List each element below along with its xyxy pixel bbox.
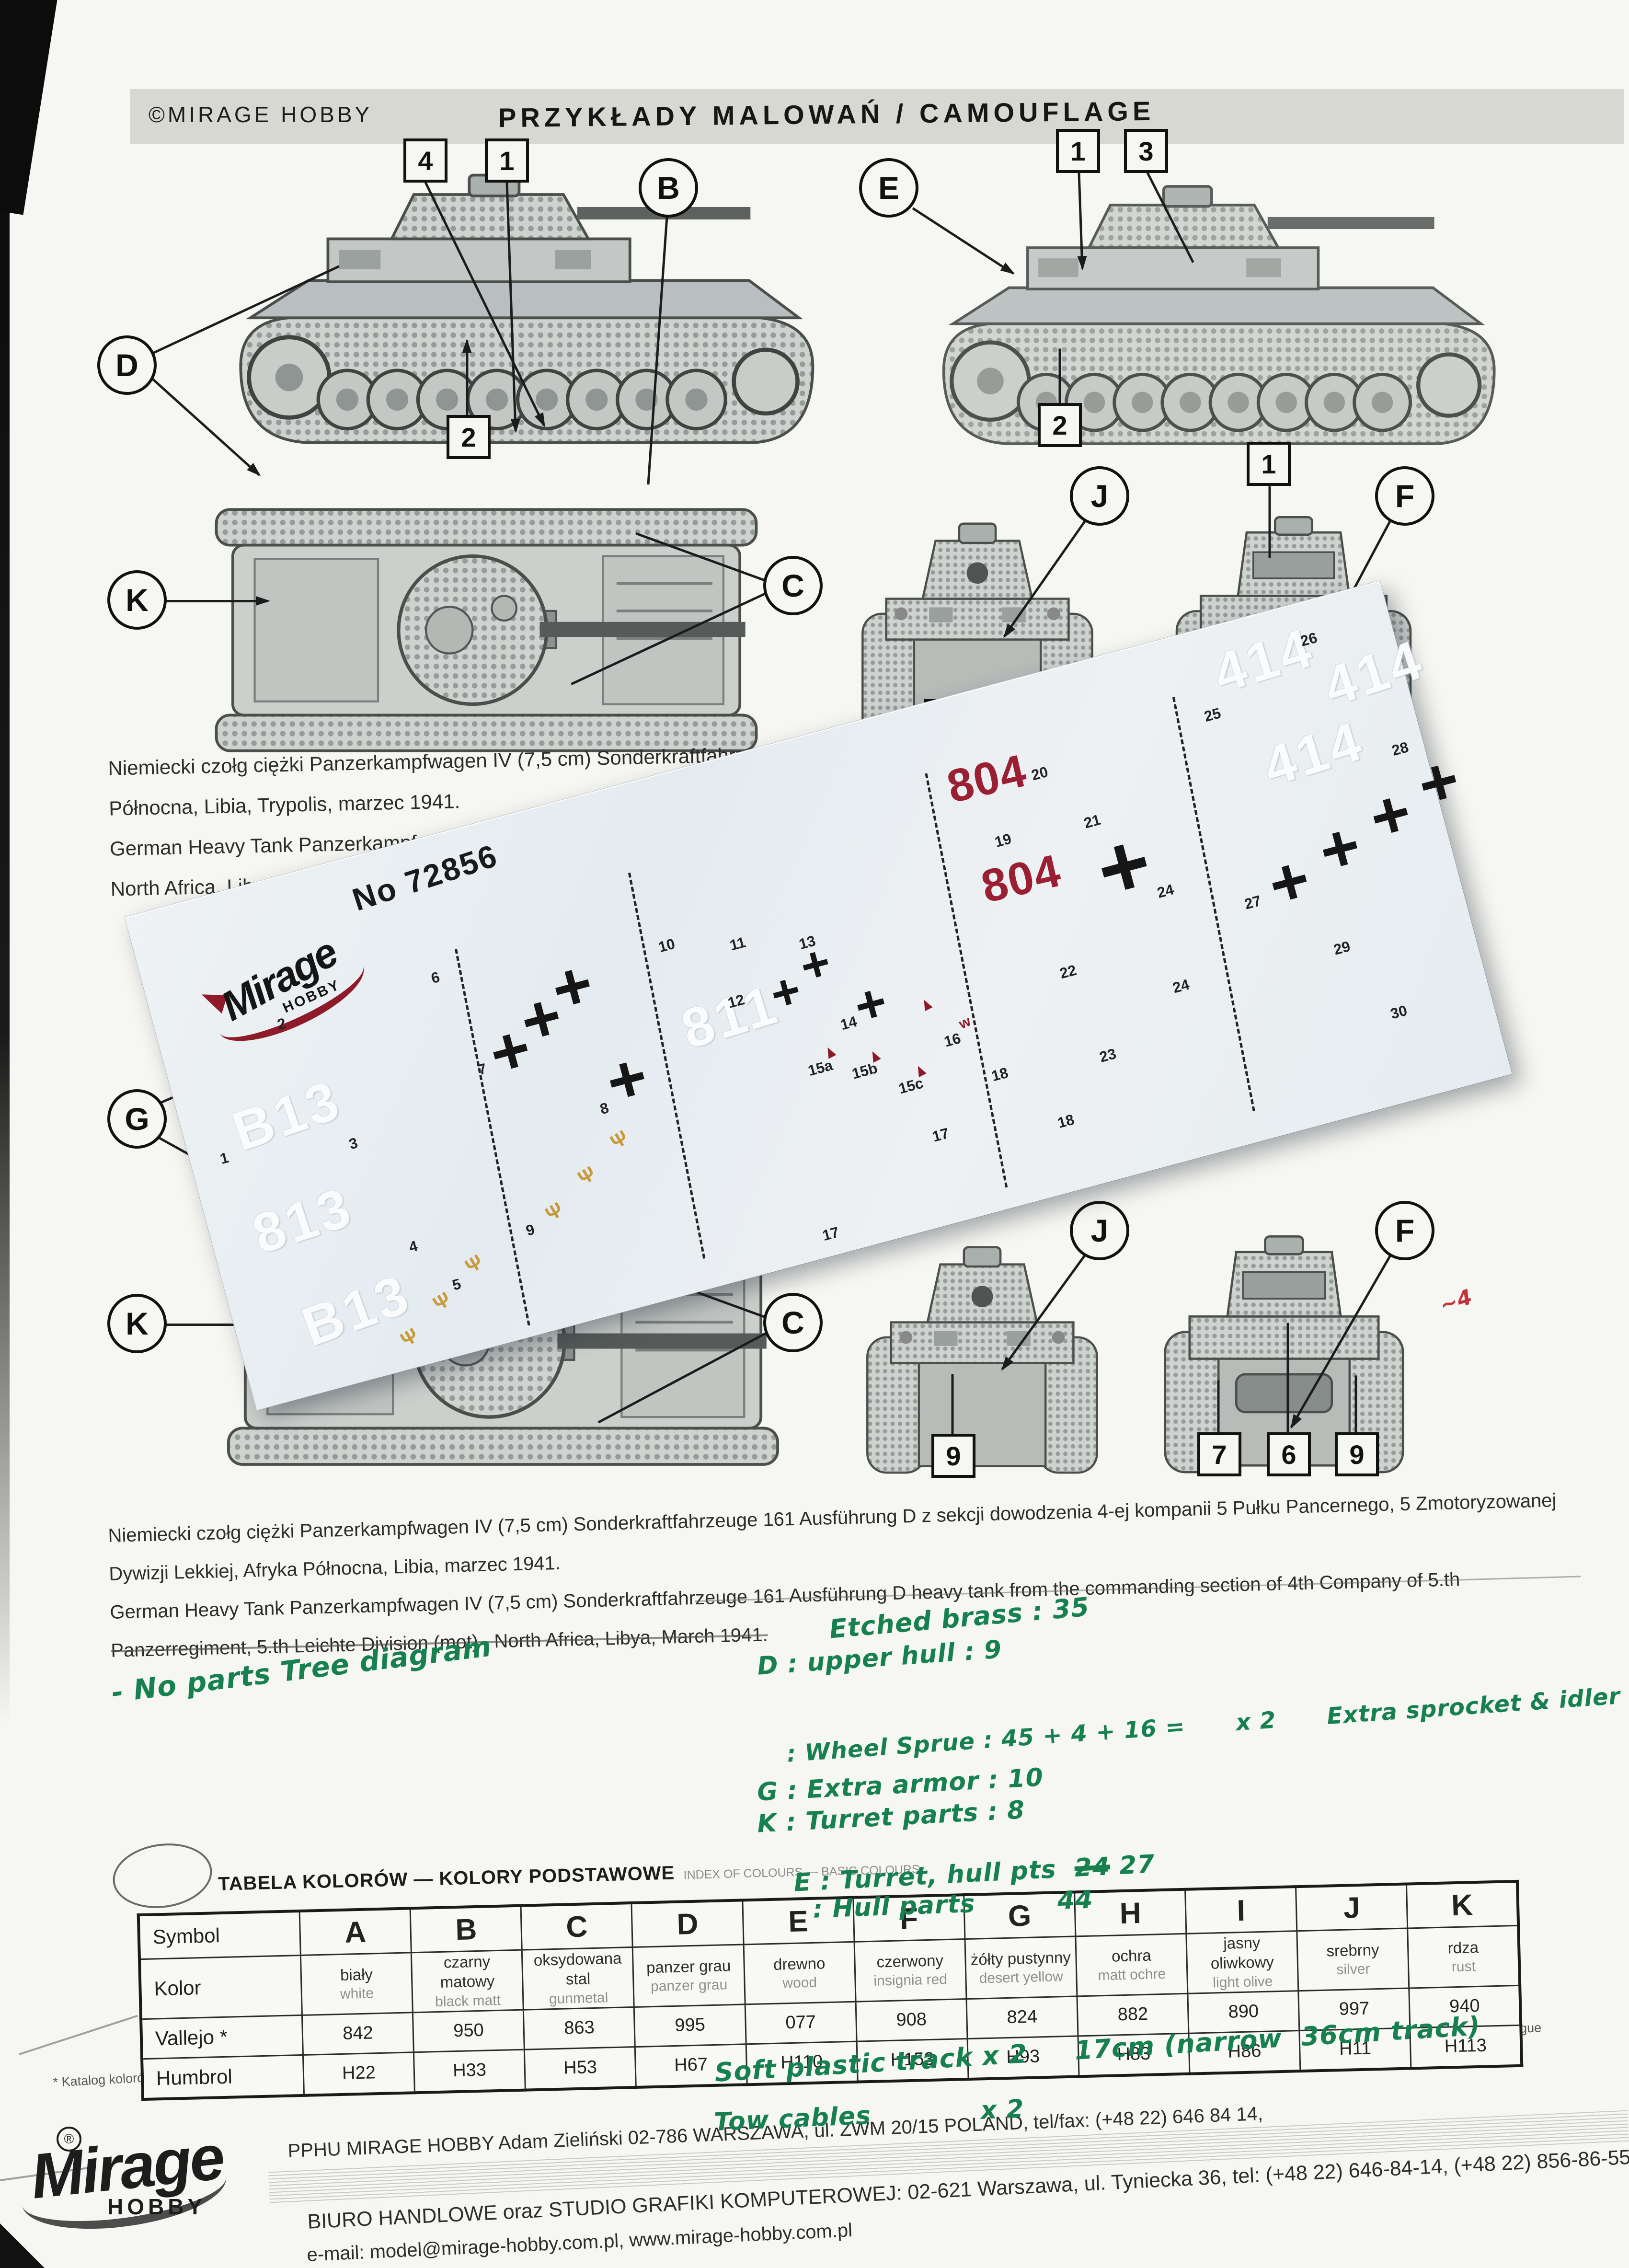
callout-box-7: 7 [1197, 1432, 1241, 1476]
table-cell: białywhite [300, 1953, 413, 2015]
decal-ghost-numeral: 414 [1256, 709, 1371, 799]
color-name-pl: srebrny [1301, 1939, 1405, 1961]
scanned-instruction-page: ©MIRAGE HOBBY PRZYKŁADY MALOWAŃ / CAMOUF… [0, 0, 1629, 2268]
callout-box-9: 9 [931, 1434, 975, 1478]
table-cell: K [1407, 1881, 1518, 1928]
tank-front-view-lower [858, 1217, 1107, 1485]
decal-item-number: 15c [897, 1074, 925, 1097]
leader-line [952, 1374, 954, 1439]
callout-circle-e: E [859, 158, 918, 218]
decal-item-number: 10 [656, 935, 677, 956]
row-label: Humbrol [142, 2055, 304, 2099]
color-name-en: rust [1412, 1956, 1515, 1977]
table-cell: oksydowana stalgunmetal [522, 1947, 634, 2010]
decal-item-number: 24 [1155, 881, 1176, 902]
leader-line [1059, 349, 1061, 406]
table-cell: A [299, 1908, 411, 1955]
color-name-pl: żółty pustynny [969, 1947, 1073, 1969]
color-name-pl: czarny matowy [415, 1951, 519, 1993]
tank-side-view-left [206, 156, 843, 474]
decal-balkenkreuz-icon [552, 967, 593, 1008]
scan-corner-artifact [0, 0, 62, 215]
decal-red-numeral: 804 [942, 744, 1032, 814]
table-cell: 863 [524, 2007, 635, 2049]
leader-line [1269, 486, 1271, 558]
table-cell: srebrnysilver [1297, 1928, 1409, 1991]
callout-circle-c: C [763, 1293, 823, 1352]
table-cell: 824 [966, 1996, 1078, 2038]
decal-item-number: 20 [1030, 763, 1050, 784]
footer-logo: ® Mirage HOBBY [16, 2127, 294, 2242]
callout-box-4: 4 [403, 138, 447, 183]
decal-item-number: 18 [990, 1064, 1010, 1085]
callout-circle-c: C [763, 556, 823, 615]
pencil-line [19, 2015, 138, 2055]
color-name-en: desert yellow [969, 1967, 1073, 1988]
table-cell: H22 [303, 2052, 414, 2095]
decal-separator-line [455, 949, 530, 1325]
decal-item-number: 6 [429, 968, 442, 987]
color-name-pl: panzer grau [637, 1955, 741, 1978]
color-name-pl: ochra [1079, 1945, 1183, 1967]
color-name-en: black matt [416, 1990, 520, 2011]
callout-box-9: 9 [1335, 1432, 1379, 1476]
table-cell: H33 [414, 2049, 526, 2093]
table-cell: jasny oliwkowylight olive [1186, 1931, 1298, 1993]
decal-balkenkreuz-icon [490, 1031, 531, 1072]
brand-subname: HOBBY [107, 2194, 206, 2220]
table-cell: ochramatt ochre [1076, 1934, 1188, 1996]
decal-balkenkreuz-icon [1418, 762, 1459, 804]
decal-item-number: 17 [821, 1223, 841, 1244]
callout-circle-d: D [97, 335, 157, 395]
decal-item-number: 28 [1390, 738, 1411, 760]
color-name-en: white [305, 1983, 409, 2004]
table-cell: 908 [856, 1999, 967, 2041]
decal-item-number: 9 [524, 1221, 537, 1240]
decal-item-number: 7 [476, 1060, 489, 1079]
callout-circle-k: K [107, 1294, 167, 1353]
decal-item-number: 11 [728, 933, 747, 954]
table-cell: rdzarust [1408, 1925, 1520, 1988]
decal-insignia-icon: Ψ [607, 1126, 632, 1154]
decal-brand-logo: Mirage HOBBY [199, 916, 433, 1051]
decal-item-number: 23 [1098, 1045, 1118, 1066]
decal-balkenkreuz-icon [521, 999, 562, 1040]
note-wheel-sprue: : Wheel Sprue : 45 + 4 + 16 = x 2 Extra … [786, 1682, 1621, 1768]
table-cell: B [410, 1906, 522, 1953]
decal-insignia-icon: Ψ [461, 1250, 487, 1278]
color-name-en: gunmetal [527, 1988, 631, 2009]
decal-item-number: 1 [218, 1149, 230, 1168]
decal-balkenkreuz-icon [855, 988, 887, 1021]
row-label: Symbol [138, 1911, 301, 1959]
callout-circle-g: G [107, 1089, 167, 1149]
decal-item-number: 3 [347, 1134, 360, 1153]
decal-item-number: 25 [1202, 704, 1223, 725]
leader-line [466, 341, 469, 417]
leader-line [1355, 1376, 1357, 1438]
table-cell: D [631, 1900, 743, 1947]
table-cell: 077 [745, 2002, 857, 2044]
decal-item-number: 22 [1058, 962, 1078, 983]
decal-balkenkreuz-icon [1097, 840, 1151, 894]
table-cell: C [521, 1903, 632, 1950]
note-value: 44 [1057, 1885, 1093, 1915]
decal-item-number: 17 [930, 1125, 951, 1146]
callout-box-1: 1 [485, 138, 529, 183]
callout-box-1: 1 [1247, 442, 1291, 486]
callout-box-1: 1 [1056, 129, 1100, 173]
scan-edge-artifact [0, 0, 10, 1725]
decal-red-mark-icon: w [957, 1013, 974, 1033]
decal-balkenkreuz-icon [1269, 862, 1310, 903]
callout-circle-j: J [1070, 466, 1129, 526]
color-name-en: light olive [1191, 1971, 1295, 1992]
decal-red-arrow-icon [824, 1046, 836, 1059]
decal-red-arrow-icon [920, 998, 933, 1011]
color-name-en: insignia red [859, 1969, 963, 1991]
leader-line [1217, 1381, 1220, 1438]
callout-circle-f: F [1375, 466, 1434, 526]
decal-item-number: 8 [598, 1099, 611, 1118]
color-name-pl: biały [304, 1963, 408, 1986]
color-name-en: panzer grau [637, 1975, 741, 1996]
decal-item-number: 4 [407, 1237, 419, 1256]
decal-item-number: 30 [1388, 1002, 1409, 1023]
color-name-en: wood [748, 1972, 852, 1993]
row-label: Vallejo * [141, 2015, 303, 2059]
decal-separator-line [1172, 697, 1255, 1112]
table-ellipse-icon [109, 1837, 216, 1914]
decal-ghost-numeral: B13 [225, 1068, 349, 1163]
callout-circle-j: J [1070, 1201, 1129, 1260]
table-cell: 842 [302, 2012, 413, 2055]
decal-item-number: 27 [1243, 892, 1263, 913]
decal-item-number: 21 [1082, 811, 1102, 832]
callout-box-3: 3 [1124, 129, 1168, 173]
decal-item-number: 16 [942, 1030, 963, 1051]
callout-box-2: 2 [1038, 403, 1082, 447]
decal-item-number: 19 [993, 830, 1013, 851]
decal-insignia-icon: Ψ [541, 1198, 567, 1226]
decal-item-number: 15a [806, 1057, 835, 1080]
decal-item-number: 15b [850, 1059, 879, 1083]
decal-item-number: 24 [1171, 976, 1192, 997]
color-name-pl: oksydowana stal [526, 1948, 630, 1990]
color-name-en: matt ochre [1080, 1964, 1184, 1985]
color-name-pl: drewno [747, 1953, 851, 1975]
table-cell: 950 [413, 2010, 524, 2052]
color-name-en: silver [1301, 1959, 1405, 1980]
decal-item-number: 14 [838, 1013, 859, 1034]
callout-box-6: 6 [1267, 1432, 1311, 1476]
leader-line [1287, 1323, 1289, 1438]
table-cell: J [1296, 1884, 1408, 1931]
callout-circle-f: F [1375, 1201, 1434, 1260]
decal-balkenkreuz-icon [1370, 795, 1411, 836]
decal-ghost-numeral: 813 [245, 1175, 360, 1266]
decal-ghost-numeral: 811 [674, 972, 786, 1061]
table-cell: 995 [634, 2004, 746, 2047]
tank-side-view-right [910, 168, 1524, 474]
decal-insignia-icon: Ψ [429, 1288, 455, 1316]
decal-insignia-icon: Ψ [574, 1162, 600, 1190]
note-value: 27 [1109, 1850, 1155, 1881]
decal-item-number: 5 [450, 1275, 463, 1294]
decal-item-number: 18 [1056, 1111, 1077, 1132]
callout-circle-b: B [639, 158, 698, 218]
decal-item-number: 13 [797, 932, 818, 953]
leader-line [165, 600, 268, 602]
callout-box-2: 2 [447, 415, 491, 459]
decal-ghost-numeral: 414 [1206, 616, 1321, 706]
decal-item-number: 29 [1332, 938, 1353, 959]
decal-red-numeral: 804 [976, 844, 1066, 914]
row-label: Kolor [139, 1955, 302, 2019]
decal-ghost-numeral: B13 [294, 1262, 419, 1359]
table-cell: I [1185, 1887, 1297, 1934]
color-name-pl: rdza [1411, 1936, 1515, 1958]
table-cell: H53 [525, 2047, 636, 2090]
table-title-main: TABELA KOLORÓW — KOLORY PODSTAWOWE [218, 1863, 675, 1895]
table-cell: panzer graupanzer grau [633, 1945, 745, 2007]
callout-circle-k: K [107, 570, 167, 630]
decal-balkenkreuz-icon [800, 950, 830, 980]
color-name-pl: jasny oliwkowy [1190, 1932, 1294, 1974]
note-hull-parts: : Hull parts 44 [775, 1857, 1095, 1954]
red-pen-mark: ~4 [1437, 1285, 1475, 1318]
decal-balkenkreuz-icon [607, 1059, 648, 1100]
table-cell: czarny matowyblack matt [411, 1950, 523, 2012]
note-text: : Hull parts [813, 1887, 1058, 1924]
copyright-text: ©MIRAGE HOBBY [149, 102, 372, 127]
decal-balkenkreuz-icon [1319, 829, 1361, 870]
color-name-pl: czerwony [858, 1950, 962, 1972]
